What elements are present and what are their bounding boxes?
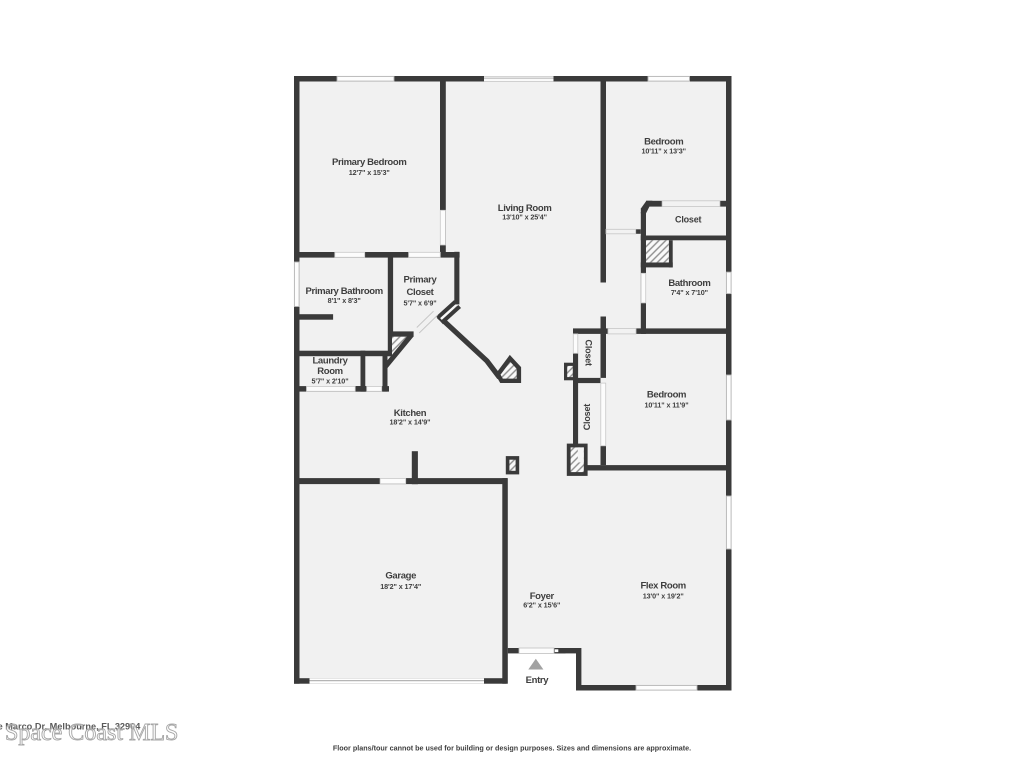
svg-text:13'0" x 19'2": 13'0" x 19'2" bbox=[643, 592, 684, 601]
svg-text:Closet: Closet bbox=[583, 340, 593, 367]
svg-text:Closet: Closet bbox=[582, 404, 592, 431]
svg-text:Primary Bedroom: Primary Bedroom bbox=[332, 157, 406, 168]
svg-text:7'4" x 7'10": 7'4" x 7'10" bbox=[671, 288, 708, 297]
svg-text:Closet: Closet bbox=[675, 215, 702, 225]
svg-text:Flex Room: Flex Room bbox=[640, 581, 685, 592]
svg-text:Bedroom: Bedroom bbox=[647, 389, 686, 400]
svg-text:5'7" x 6'9": 5'7" x 6'9" bbox=[403, 299, 436, 308]
svg-text:18'2" x 14'9": 18'2" x 14'9" bbox=[390, 418, 431, 427]
svg-text:5'7" x 2'10": 5'7" x 2'10" bbox=[311, 377, 348, 386]
svg-text:Floor plans/tour cannot be use: Floor plans/tour cannot be used for buil… bbox=[333, 744, 691, 753]
svg-text:13'10" x 25'4": 13'10" x 25'4" bbox=[502, 213, 547, 222]
svg-text:Room: Room bbox=[317, 366, 343, 377]
svg-text:Closet: Closet bbox=[407, 287, 435, 298]
svg-text:Laundry: Laundry bbox=[312, 355, 348, 366]
svg-text:Entry: Entry bbox=[526, 675, 550, 686]
svg-text:Garage: Garage bbox=[385, 570, 416, 581]
svg-text:6'2" x 15'6": 6'2" x 15'6" bbox=[523, 601, 560, 610]
svg-text:Primary: Primary bbox=[404, 274, 438, 285]
svg-text:10'11" x 13'3": 10'11" x 13'3" bbox=[641, 147, 685, 156]
svg-text:Space Coast MLS: Space Coast MLS bbox=[5, 720, 178, 746]
svg-text:12'7" x 15'3": 12'7" x 15'3" bbox=[349, 168, 390, 177]
svg-text:8'1" x 8'3": 8'1" x 8'3" bbox=[328, 296, 361, 305]
svg-text:18'2" x 17'4": 18'2" x 17'4" bbox=[380, 582, 421, 591]
svg-text:10'11" x 11'9": 10'11" x 11'9" bbox=[644, 401, 688, 410]
